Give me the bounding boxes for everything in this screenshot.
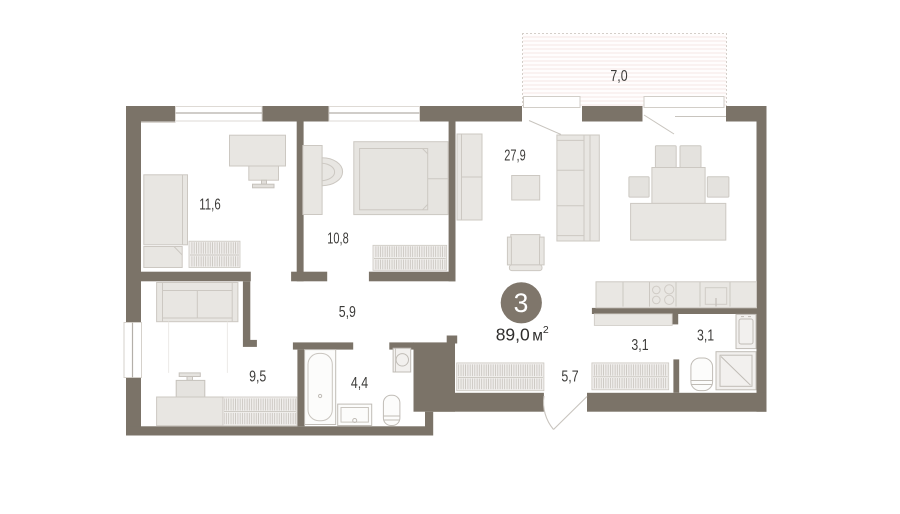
svg-text:11,6: 11,6 bbox=[199, 197, 220, 214]
svg-text:9,5: 9,5 bbox=[249, 368, 266, 385]
svg-text:4,4: 4,4 bbox=[351, 375, 368, 392]
svg-text:3,1: 3,1 bbox=[631, 337, 648, 354]
svg-text:3,1: 3,1 bbox=[697, 328, 714, 345]
svg-text:5,7: 5,7 bbox=[561, 369, 578, 386]
svg-text:89,0м2: 89,0м2 bbox=[496, 324, 549, 345]
svg-text:27,9: 27,9 bbox=[504, 147, 525, 164]
svg-text:3: 3 bbox=[514, 288, 529, 318]
svg-text:5,9: 5,9 bbox=[339, 304, 356, 321]
svg-text:7,0: 7,0 bbox=[610, 68, 627, 85]
svg-text:10,8: 10,8 bbox=[327, 231, 348, 248]
